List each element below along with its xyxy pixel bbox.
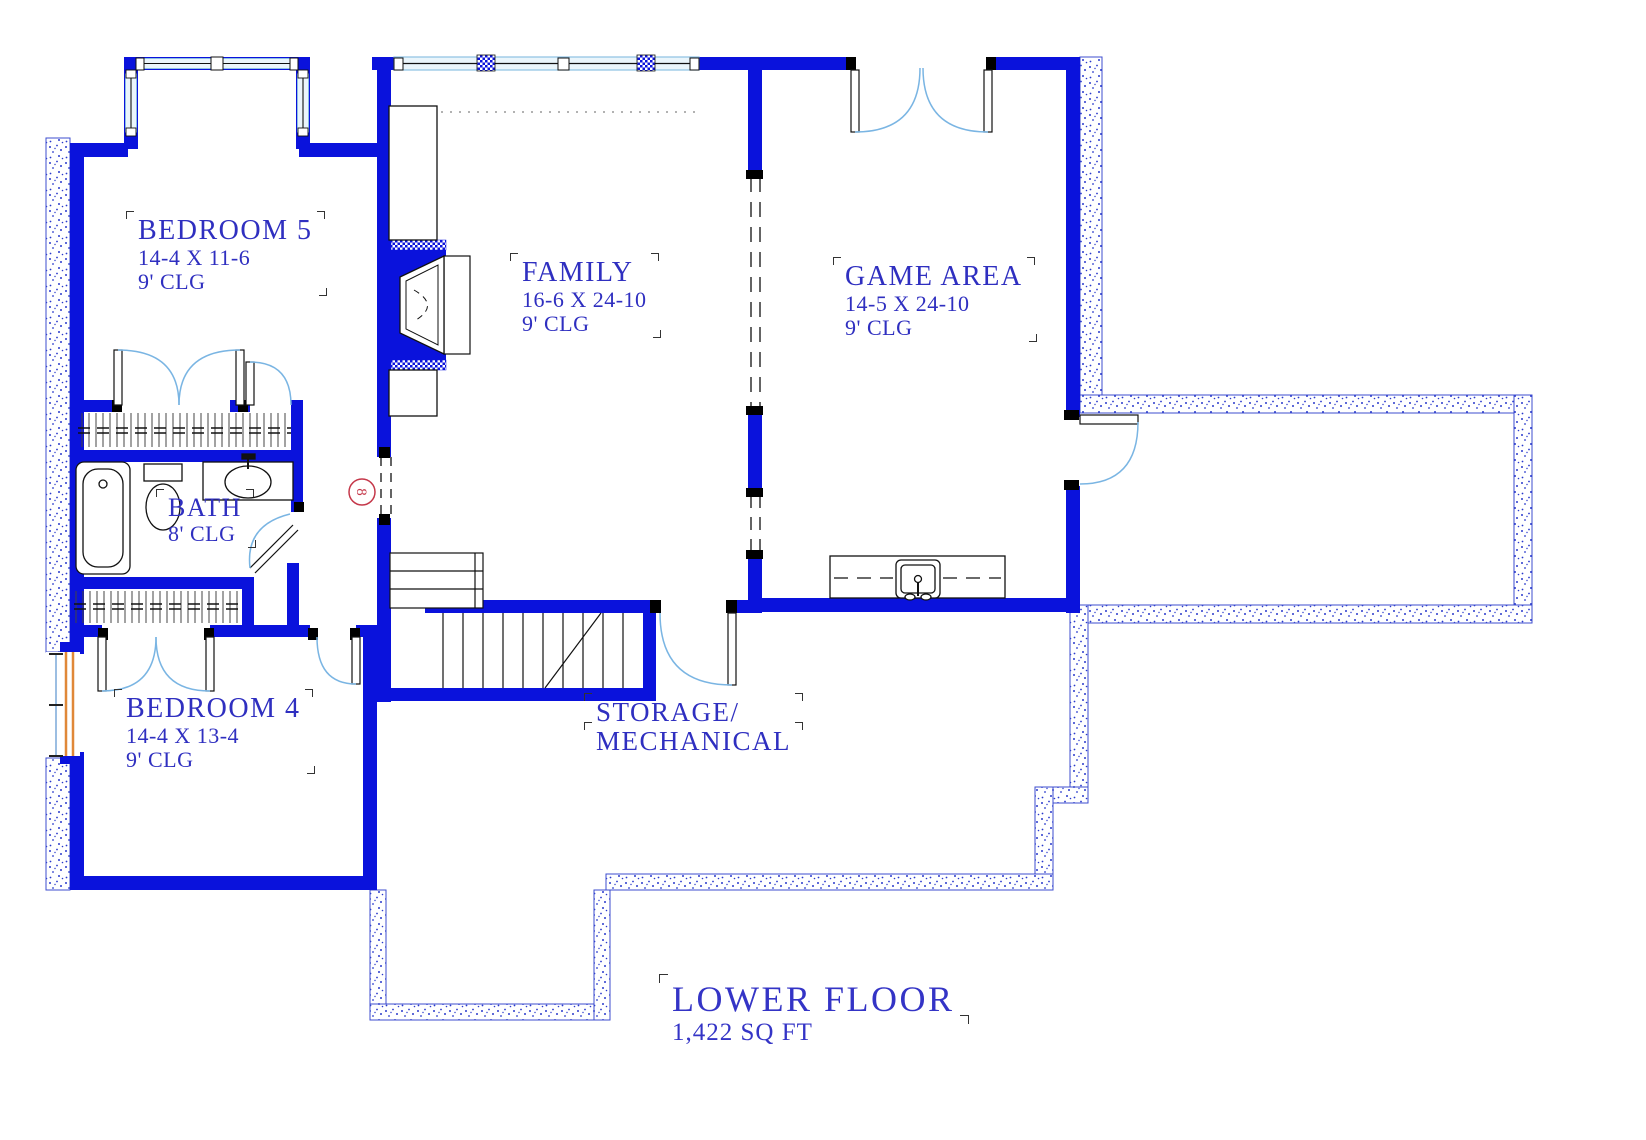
room-label-bedroom5: BEDROOM 5 14-4 X 11-6 9' CLG [138,216,313,294]
room-name: GAME AREA [845,262,1023,292]
foundation-walls [46,57,1532,1020]
door-jambs [98,57,1079,640]
room-name-line2: MECHANICAL [596,727,791,756]
room-label-family: FAMILY 16-6 X 24-10 9' CLG [522,258,647,336]
room-ceiling: 9' CLG [126,748,301,772]
room-label-storage-mechanical: STORAGE/ MECHANICAL [596,698,791,756]
room-name-line1: STORAGE/ [596,698,791,727]
room-label-game-area: GAME AREA 14-5 X 24-10 9' CLG [845,262,1023,340]
egress-window-icon [46,652,80,756]
bathtub-icon [76,462,130,574]
plan-title-block: LOWER FLOOR 1,422 SQ FT [672,980,955,1046]
plan-title: LOWER FLOOR [672,980,955,1019]
room-name: BATH [168,494,242,522]
stairs-icon [390,553,623,688]
bar-sink-icon [896,560,940,600]
room-label-bath: BATH 8' CLG [168,494,242,546]
room-ceiling: 9' CLG [138,270,313,294]
room-label-bedroom4: BEDROOM 4 14-4 X 13-4 9' CLG [126,694,301,772]
closet-rod-bedroom5 [78,413,291,447]
wet-bar-icon [830,556,1005,600]
room-dimensions: 14-4 X 11-6 [138,246,313,270]
room-name: BEDROOM 4 [126,694,301,724]
floor-plan-page: 8 BEDROOM 5 14-4 X 11-6 9' CLG FAMILY 16… [0,0,1646,1140]
room-dimensions: 14-4 X 13-4 [126,724,301,748]
room-ceiling: 9' CLG [522,312,647,336]
room-dimensions: 14-5 X 24-10 [845,292,1023,316]
plan-area: 1,422 SQ FT [672,1019,955,1046]
keynote-marker: 8 [349,479,375,505]
closet-rod-bedroom4 [74,591,242,623]
keynote-number: 8 [353,488,369,496]
family-window-band-icon [394,55,700,112]
room-dimensions: 16-6 X 24-10 [522,288,647,312]
room-name: BEDROOM 5 [138,216,313,246]
bay-window-icon [126,57,309,136]
room-name: FAMILY [522,258,647,288]
room-ceiling: 9' CLG [845,316,1023,340]
fireplace-icon [386,106,470,416]
room-ceiling: 8' CLG [168,522,242,546]
floor-plan-drawing: 8 [0,0,1646,1140]
